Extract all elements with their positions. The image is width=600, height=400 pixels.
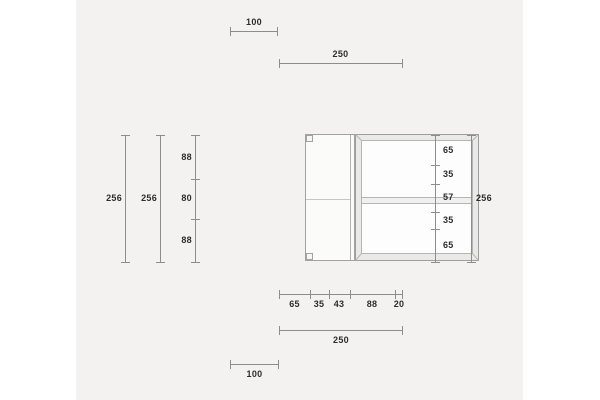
dim-tick [350, 290, 351, 299]
dim-tick [431, 212, 440, 213]
dim-bottom-right-width: 250 [279, 330, 403, 331]
dim-label: 88 [367, 299, 378, 310]
dim-bottom-left-width: 100 [230, 364, 279, 365]
dim-top-right-width: 250 [279, 63, 403, 64]
dim-bottom-segments: 65 35 43 88 20 [279, 294, 403, 295]
dim-tick [431, 229, 440, 230]
dim-label: 65 [289, 299, 300, 310]
dim-label: 100 [247, 369, 263, 380]
dim-tick [310, 290, 311, 299]
dim-left-segments: 88 80 88 [195, 135, 196, 263]
dim-right-segments: 65 35 57 35 65 [435, 135, 436, 263]
dim-label: 35 [314, 299, 325, 310]
drawing-page: 100 250 256 256 88 80 88 65 35 57 [0, 0, 600, 400]
dim-label: 43 [334, 299, 345, 310]
dim-label: 256 [141, 193, 157, 204]
dim-tick [431, 184, 440, 185]
dim-tick [191, 219, 200, 220]
dim-label: 88 [181, 152, 192, 163]
dim-tick [395, 290, 396, 299]
dim-label: 35 [443, 215, 454, 226]
dim-left-total-inner: 256 [160, 135, 161, 263]
dim-label: 256 [106, 193, 122, 204]
dim-top-left-width: 100 [230, 31, 278, 32]
dim-label: 35 [443, 169, 454, 180]
dim-tick [329, 290, 330, 299]
dim-label: 80 [181, 193, 192, 204]
side-panel-view [305, 134, 355, 261]
dim-label: 20 [394, 299, 405, 310]
hinge-marker-icon [306, 253, 313, 260]
dim-label: 57 [443, 192, 454, 203]
panel-shelf-line [306, 199, 350, 200]
frame-drawing [355, 134, 479, 261]
dim-label: 65 [443, 145, 454, 156]
hinge-marker-icon [306, 135, 313, 142]
front-frame-view [355, 134, 479, 261]
dim-label: 88 [181, 235, 192, 246]
dim-label: 250 [333, 335, 349, 346]
dim-tick [191, 179, 200, 180]
dim-label: 256 [476, 193, 492, 204]
dim-label: 65 [443, 240, 454, 251]
drawing-canvas: 100 250 256 256 88 80 88 65 35 57 [76, 0, 523, 400]
dim-label: 250 [333, 49, 349, 60]
dim-tick [431, 165, 440, 166]
dim-right-total: 256 [471, 135, 472, 263]
dim-left-total-outer: 256 [125, 135, 126, 263]
panel-edge-line [350, 135, 351, 260]
dim-label: 100 [246, 17, 262, 28]
